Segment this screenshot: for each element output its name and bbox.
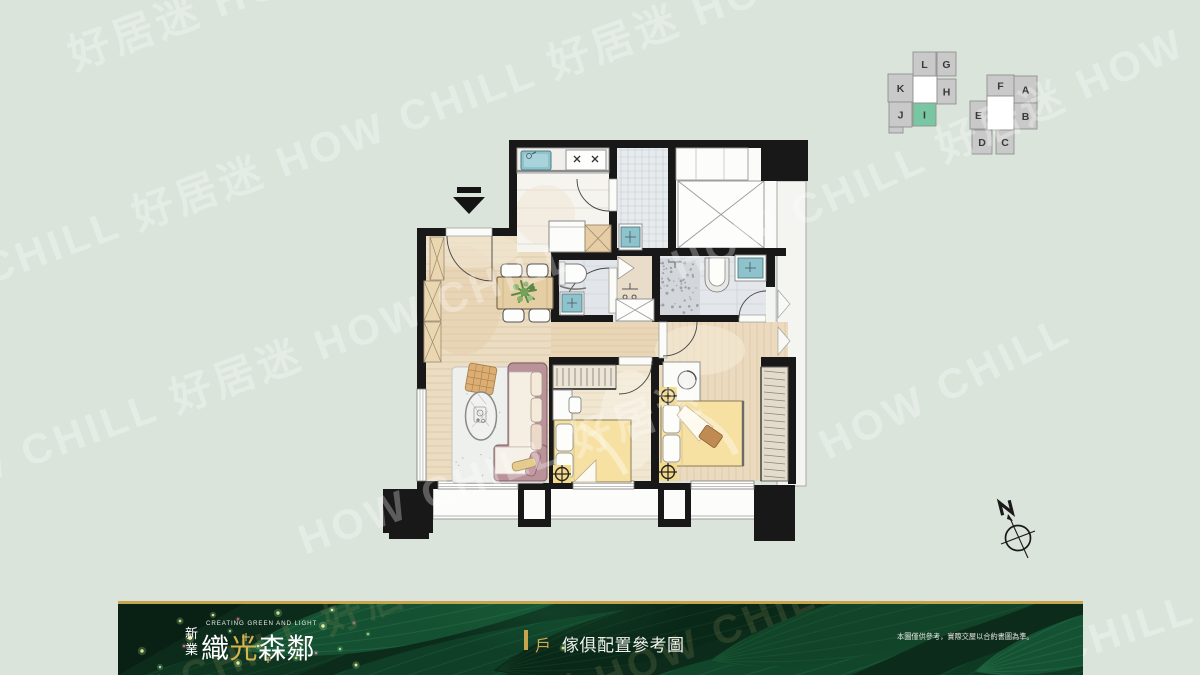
svg-text:HOW CHILL: HOW CHILL (811, 306, 1078, 468)
svg-text:F: F (997, 81, 1004, 93)
svg-text:K: K (897, 83, 905, 95)
svg-text:J: J (898, 110, 904, 122)
svg-text:G: G (942, 59, 950, 71)
svg-text:L: L (921, 59, 928, 71)
svg-text:H: H (943, 87, 951, 99)
svg-text:好居迷 HOW CHILL: 好居迷 HOW CHILL (61, 0, 480, 79)
svg-text:I: I (923, 110, 926, 122)
